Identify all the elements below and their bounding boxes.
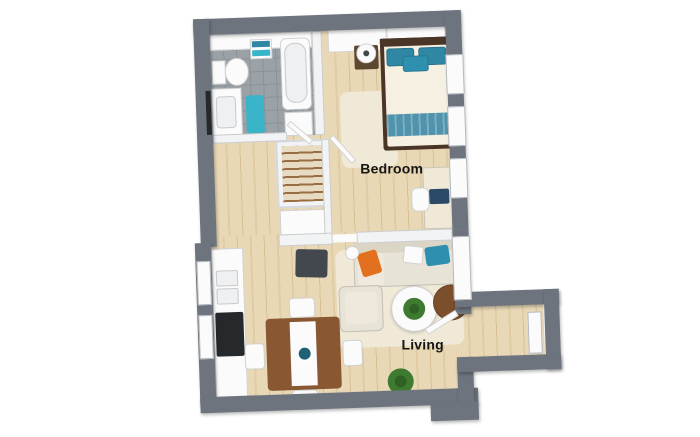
kitchen-sink-top	[216, 270, 239, 287]
front-door	[527, 311, 542, 353]
dining-chair-top	[289, 297, 316, 318]
vestibule-wall-bottom	[457, 354, 561, 373]
kitchen-cooktop	[215, 312, 245, 357]
sofa-pillow-white	[402, 245, 424, 265]
living-label: Living	[401, 337, 443, 353]
wall-bedroom-living-left	[279, 233, 333, 247]
window-right-1	[445, 54, 464, 95]
window-left-1	[196, 261, 212, 305]
desk-chair	[411, 187, 430, 212]
sofa-pillow-teal	[424, 244, 450, 266]
threshold-bedroom-living	[333, 234, 357, 243]
bedroom-label: Bedroom	[360, 161, 423, 177]
kitchen-sink-bottom	[216, 288, 239, 305]
window-right-3	[449, 158, 468, 199]
floorplan-canvas: Bedroom Living	[0, 0, 700, 437]
dining-chair-right	[342, 340, 363, 367]
bathtub-inner	[284, 42, 308, 103]
window-left-2	[198, 315, 214, 359]
closet-hanging-rods	[281, 145, 323, 202]
floorplan: Bedroom Living	[0, 0, 700, 437]
window-right-2	[447, 106, 466, 147]
bed-pillow-accent	[402, 55, 429, 72]
dining-chair-left	[244, 343, 265, 370]
window-right-living	[452, 236, 472, 301]
vanity-basin	[216, 96, 237, 129]
ottoman-stool	[295, 249, 327, 278]
wall-step-block	[430, 402, 479, 422]
bed-throw-blanket	[386, 112, 451, 136]
floorplan-shapes	[0, 0, 692, 12]
towel-teal-top	[252, 41, 270, 48]
bath-mat	[246, 95, 265, 134]
towel-teal-bottom	[252, 50, 270, 57]
desk-laptop	[429, 189, 450, 205]
armchair-cushion	[345, 291, 378, 324]
